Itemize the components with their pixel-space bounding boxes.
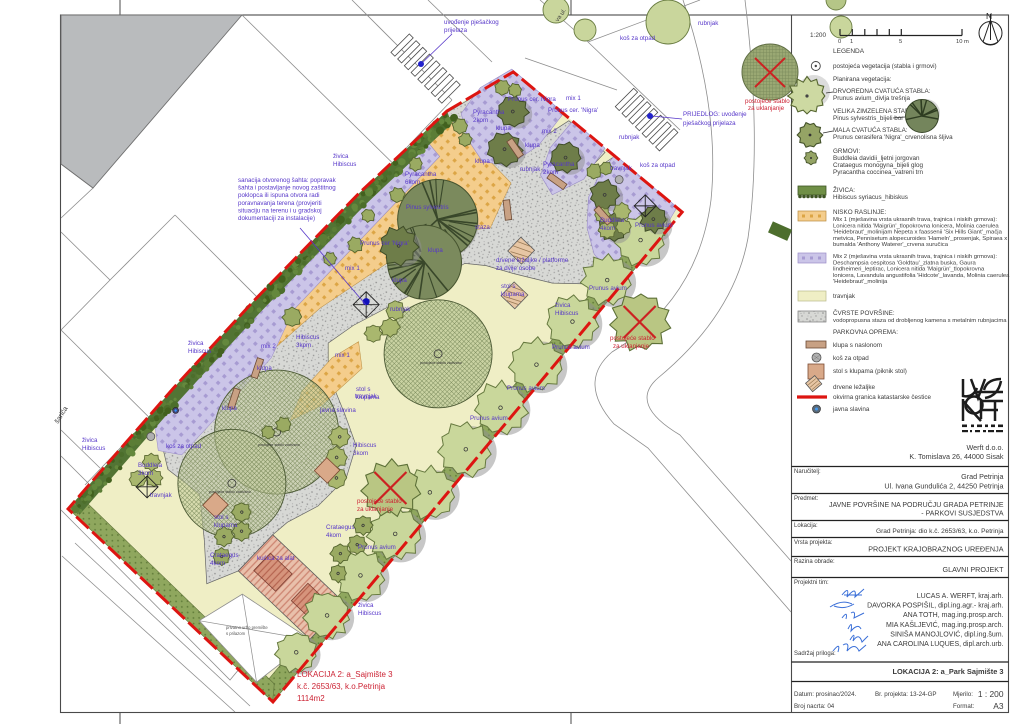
- svg-text:MALA CVATUĆA STABLA:: MALA CVATUĆA STABLA:: [833, 125, 908, 134]
- svg-text:rubnjak: rubnjak: [390, 306, 411, 313]
- svg-text:JAVNE POVRŠINE NA PODRUČJU GRA: JAVNE POVRŠINE NA PODRUČJU GRADA PETRINJ…: [829, 500, 1004, 509]
- svg-text:poklopca ili ispuna otvora rad: poklopca ili ispuna otvora radi: [238, 192, 320, 199]
- svg-text:živica: živica: [188, 340, 204, 347]
- svg-text:DAVORKA POSPIŠIL, dipl.ing.agr: DAVORKA POSPIŠIL, dipl.ing.agr.- kraj.ar…: [867, 601, 1003, 610]
- svg-text:živica: živica: [82, 437, 98, 444]
- svg-text:5: 5: [899, 39, 902, 45]
- svg-text:klupa: klupa: [475, 158, 490, 165]
- svg-text:2kom: 2kom: [473, 117, 488, 124]
- svg-text:Werft d.o.o.: Werft d.o.o.: [966, 443, 1003, 452]
- svg-text:K. Tomislava 26, 44000 Sisak: K. Tomislava 26, 44000 Sisak: [909, 452, 1004, 461]
- svg-text:4kom: 4kom: [210, 560, 225, 567]
- svg-text:6kom: 6kom: [405, 179, 420, 186]
- svg-text:Razina obrade:: Razina obrade:: [794, 559, 835, 565]
- svg-text:GRMOVI:: GRMOVI:: [833, 148, 861, 155]
- svg-text:Prunus avium_divlja trešnja: Prunus avium_divlja trešnja: [833, 95, 910, 102]
- svg-text:klupa: klupa: [428, 247, 443, 254]
- svg-text:N: N: [986, 11, 992, 21]
- svg-text:mix 1: mix 1: [345, 265, 360, 272]
- svg-text:Crataegus: Crataegus: [210, 552, 239, 559]
- svg-text:travnjak: travnjak: [833, 293, 856, 300]
- svg-text:klupa: klupa: [525, 142, 540, 149]
- svg-text:sanacija otvorenog šahta: popr: sanacija otvorenog šahta: popravak: [238, 177, 337, 184]
- svg-text:'Heidebraut'_molinijam Nepeta: 'Heidebraut'_molinijam Nepeta x faasseni…: [833, 230, 1003, 236]
- svg-text:0: 0: [838, 39, 841, 45]
- svg-text:poravnavanja terena (provjerit: poravnavanja terena (provjeriti: [238, 200, 322, 207]
- svg-text:Planirana vegetacija:: Planirana vegetacija:: [833, 76, 892, 83]
- svg-text:Pyracantha coccinea_vatreni tr: Pyracantha coccinea_vatreni trn: [833, 169, 923, 176]
- svg-text:Prunus cer. Nigra: Prunus cer. Nigra: [508, 96, 556, 103]
- svg-text:šahta i postavljanje novog zaš: šahta i postavljanje novog zaštitnog: [238, 185, 336, 192]
- svg-text:situaciju na terenu i u gradsk: situaciju na terenu i u gradskoj: [238, 207, 322, 214]
- svg-text:Grad Petrinja: dio k.č. 2653/6: Grad Petrinja: dio k.č. 2653/63, k.o. Pe…: [876, 528, 1004, 535]
- svg-text:LOKACIJA 2: a_Sajmište 3: LOKACIJA 2: a_Sajmište 3: [297, 670, 393, 679]
- svg-text:koš za otpad: koš za otpad: [166, 443, 202, 450]
- svg-text:NISKO RASLINJE:: NISKO RASLINJE:: [833, 209, 886, 216]
- svg-text:javna slavina: javna slavina: [319, 407, 356, 414]
- svg-text:rubnjak: rubnjak: [619, 134, 640, 141]
- svg-text:Prunus avium: Prunus avium: [470, 415, 508, 422]
- svg-text:za dvije osobe: za dvije osobe: [496, 265, 536, 272]
- svg-text:stol s: stol s: [214, 514, 228, 521]
- svg-text:Prunus avium: Prunus avium: [552, 344, 590, 351]
- svg-text:prijelaza: prijelaza: [444, 27, 468, 34]
- svg-text:Prunus avium: Prunus avium: [635, 222, 673, 229]
- svg-text:Mix 2 (mješavina vrsta ukrasni: Mix 2 (mješavina vrsta ukrasnih trava, t…: [833, 254, 997, 260]
- svg-text:Hibiscus: Hibiscus: [358, 610, 381, 617]
- svg-text:Hibiscus: Hibiscus: [353, 442, 376, 449]
- svg-text:pješačkog prijelaza: pješačkog prijelaza: [683, 120, 736, 127]
- svg-text:LOKACIJA 2: a_Park Sajmište 3: LOKACIJA 2: a_Park Sajmište 3: [892, 667, 1003, 676]
- svg-text:metvica, Pennisetum alopecuroi: metvica, Pennisetum alopecuroides 'Hamel…: [833, 236, 1007, 242]
- svg-text:koš za otpad: koš za otpad: [640, 162, 676, 169]
- svg-text:Deschampsia cespitosa 'Goldtau: Deschampsia cespitosa 'Goldtau'_zlatna b…: [833, 260, 976, 266]
- svg-text:postojeće stablo zadržano: postojeće stablo zadržano: [420, 361, 462, 365]
- svg-text:živica: živica: [358, 602, 374, 609]
- svg-text:Hibiscus: Hibiscus: [82, 445, 105, 452]
- svg-text:mix 2: mix 2: [542, 128, 557, 135]
- svg-text:1 : 200: 1 : 200: [978, 689, 1004, 699]
- svg-text:DRVOREDNA CVATUĆA STABLA:: DRVOREDNA CVATUĆA STABLA:: [833, 86, 931, 95]
- svg-text:rubnjak: rubnjak: [520, 166, 541, 173]
- svg-text:koš za otpad: koš za otpad: [833, 355, 869, 362]
- svg-text:Broj nacrta: 04: Broj nacrta: 04: [794, 703, 835, 710]
- svg-text:Pyracantha: Pyracantha: [543, 161, 575, 168]
- svg-text:mix 2: mix 2: [261, 343, 276, 350]
- svg-text:klupama: klupama: [214, 522, 238, 529]
- svg-text:LUCAS A. WERFT, kraj.arh.: LUCAS A. WERFT, kraj.arh.: [917, 593, 1004, 600]
- svg-text:kućica za alat: kućica za alat: [257, 555, 295, 562]
- svg-text:uvođenje pješačkog: uvođenje pješačkog: [444, 19, 499, 26]
- svg-text:Hibiscus: Hibiscus: [333, 161, 356, 168]
- svg-text:mix 1: mix 1: [566, 95, 581, 102]
- svg-text:LEGENDA: LEGENDA: [833, 48, 865, 55]
- svg-text:Buddleia davidii_ljetni jorgov: Buddleia davidii_ljetni jorgovan: [833, 155, 920, 162]
- svg-text:koš za otpad: koš za otpad: [620, 35, 656, 42]
- svg-text:Pyracantha: Pyracantha: [473, 109, 505, 116]
- svg-text:Lonicera nitida 'Maigrün'_tlop: Lonicera nitida 'Maigrün'_tlopokrovna lo…: [833, 223, 999, 229]
- svg-text:A3: A3: [993, 701, 1004, 711]
- svg-text:Prunus avium: Prunus avium: [358, 544, 396, 551]
- svg-text:drvene ležaljke / platforme: drvene ležaljke / platforme: [496, 257, 569, 264]
- svg-text:3kom: 3kom: [138, 470, 153, 477]
- svg-text:'Heidebraut'_molinija: 'Heidebraut'_molinija: [833, 279, 888, 285]
- svg-text:stol s: stol s: [356, 386, 370, 393]
- svg-text:Pyracantha: Pyracantha: [405, 171, 437, 178]
- svg-text:Predmet:: Predmet:: [794, 496, 819, 502]
- svg-text:postojeće stablo: postojeće stablo: [745, 98, 790, 105]
- svg-text:SINIŠA MANOJLOVIĆ, dipl.ing.šu: SINIŠA MANOJLOVIĆ, dipl.ing.šum.: [890, 629, 1003, 638]
- svg-text:Hibiscus: Hibiscus: [555, 310, 578, 317]
- svg-text:ANA CAROLINA LUQUES, dipl.arch: ANA CAROLINA LUQUES, dipl.arch.urb.: [877, 641, 1003, 648]
- svg-text:Naručitelj:: Naručitelj:: [794, 469, 821, 475]
- svg-text:1:200: 1:200: [810, 32, 826, 39]
- svg-text:travnjak: travnjak: [610, 165, 633, 172]
- svg-text:postojeće stablo: postojeće stablo: [357, 498, 402, 505]
- svg-text:drvene ležaljke: drvene ležaljke: [833, 384, 876, 391]
- svg-text:Grad Petrinja: Grad Petrinja: [961, 472, 1003, 481]
- svg-text:postojeće stablo: postojeće stablo: [610, 335, 655, 342]
- svg-text:1: 1: [850, 39, 853, 45]
- svg-text:Mix 1 (mješavina vrsta ukrasni: Mix 1 (mješavina vrsta ukrasnih trava, t…: [833, 217, 997, 223]
- svg-text:4kom: 4kom: [326, 532, 341, 539]
- svg-text:10 m: 10 m: [956, 39, 969, 45]
- svg-text:travnjak: travnjak: [150, 492, 173, 499]
- svg-text:Crataegus monogyna_bijeli glog: Crataegus monogyna_bijeli glog: [833, 162, 923, 169]
- svg-text:postojeće stablo zadržano: postojeće stablo zadržano: [258, 443, 300, 447]
- svg-text:3kpm: 3kpm: [296, 342, 311, 349]
- svg-text:Prunus avium: Prunus avium: [507, 385, 545, 392]
- svg-text:klupa s naslonom: klupa s naslonom: [833, 342, 882, 349]
- svg-text:bumalda 'Anthony Waterer'_crve: bumalda 'Anthony Waterer'_crvena suručic…: [833, 242, 949, 248]
- svg-text:postojeće stablo zadržano: postojeće stablo zadržano: [209, 490, 251, 494]
- svg-text:Hibiscus: Hibiscus: [296, 334, 319, 341]
- svg-text:klupa: klupa: [222, 405, 237, 412]
- svg-text:ČVRSTE POVRŠINE:: ČVRSTE POVRŠINE:: [833, 308, 895, 317]
- svg-text:okvirna granica katastarske če: okvirna granica katastarske čestice: [833, 394, 931, 401]
- svg-text:Buddleia: Buddleia: [138, 462, 163, 469]
- svg-text:2kom: 2kom: [543, 169, 558, 176]
- svg-text:javna slavina: javna slavina: [832, 406, 870, 413]
- svg-text:Buddleia: Buddleia: [600, 217, 625, 224]
- svg-text:klupama: klupama: [501, 291, 525, 298]
- svg-text:4kom: 4kom: [600, 225, 615, 232]
- svg-text:stol s klupama (piknik stol): stol s klupama (piknik stol): [833, 368, 907, 375]
- svg-text:Lokacija:: Lokacija:: [794, 523, 818, 529]
- svg-text:Prunus cer 'Nigra': Prunus cer 'Nigra': [360, 240, 409, 247]
- svg-text:Br. projekta: 13-24-GP: Br. projekta: 13-24-GP: [875, 691, 937, 698]
- svg-text:Sadržaj priloga:: Sadržaj priloga:: [794, 651, 836, 657]
- svg-text:Datum: prosinac/2024.: Datum: prosinac/2024.: [794, 691, 857, 698]
- svg-text:MIA KAŠLJEVIĆ, mag.ing.prosp.a: MIA KAŠLJEVIĆ, mag.ing.prosp.arch.: [886, 620, 1004, 629]
- svg-text:lindheimeri_leptirac, Lonicera: lindheimeri_leptirac, Lonicera nitida 'M…: [833, 267, 985, 273]
- svg-text:PARKOVNA OPREMA:: PARKOVNA OPREMA:: [833, 329, 898, 336]
- svg-text:ŽIVICA:: ŽIVICA:: [833, 185, 855, 194]
- svg-text:Mjerilo:: Mjerilo:: [953, 691, 973, 698]
- svg-text:postojeća vegetacija (stabla i: postojeća vegetacija (stabla i grmovi): [833, 63, 937, 70]
- svg-text:Crataegus: Crataegus: [326, 524, 355, 531]
- svg-text:za uklanjanje: za uklanjanje: [613, 343, 650, 350]
- svg-text:rubnjak: rubnjak: [698, 20, 719, 27]
- svg-text:Projektni tim:: Projektni tim:: [794, 580, 829, 586]
- svg-text:1114m2: 1114m2: [297, 694, 325, 703]
- svg-text:PROJEKT KRAJOBRAZNOG UREĐENJA: PROJEKT KRAJOBRAZNOG UREĐENJA: [868, 545, 1003, 554]
- svg-text:klupa: klupa: [257, 365, 272, 372]
- svg-text:Pinus sylvestris_bijeli bor: Pinus sylvestris_bijeli bor: [833, 115, 903, 122]
- svg-text:vodopropusna staza od drobljen: vodopropusna staza od drobljenog kamena …: [833, 318, 1007, 324]
- svg-text:ANA TOTH, mag.ing.prosp.arch.: ANA TOTH, mag.ing.prosp.arch.: [903, 612, 1004, 619]
- svg-text:klupa: klupa: [496, 125, 511, 132]
- svg-text:za uklanjanje: za uklanjanje: [357, 506, 394, 513]
- svg-text:Format:: Format:: [953, 703, 975, 710]
- svg-text:Hibiscus: Hibiscus: [188, 348, 211, 355]
- svg-text:PRIJEDLOG: uvođenje: PRIJEDLOG: uvođenje: [683, 111, 747, 118]
- svg-text:za uklanjanje: za uklanjanje: [748, 105, 785, 112]
- svg-text:stol s: stol s: [501, 283, 515, 290]
- svg-text:3kom: 3kom: [353, 450, 368, 457]
- svg-text:Prunus cer. 'Nigra': Prunus cer. 'Nigra': [548, 107, 598, 114]
- svg-text:- PARKOVI SUSJEDSTVA: - PARKOVI SUSJEDSTVA: [921, 511, 1004, 518]
- svg-text:klupama: klupama: [356, 394, 380, 401]
- svg-text:Pinus sylvestris: Pinus sylvestris: [406, 204, 449, 211]
- svg-text:Prunus avium: Prunus avium: [589, 285, 627, 292]
- svg-text:k.č. 2653/63, k.o.Petrinja: k.č. 2653/63, k.o.Petrinja: [297, 682, 386, 691]
- svg-text:privatno urbo premište: privatno urbo premište: [226, 625, 268, 630]
- svg-text:klupa: klupa: [392, 277, 407, 284]
- svg-text:s prilazom: s prilazom: [226, 631, 246, 636]
- svg-text:lonicera, Lavandula angustifol: lonicera, Lavandula angustifolia 'Hidcot…: [833, 273, 1010, 279]
- svg-text:živica: živica: [555, 302, 571, 309]
- svg-text:Hibiscus syriacus_hibiskus: Hibiscus syriacus_hibiskus: [833, 194, 908, 201]
- svg-text:Vrsta projekta:: Vrsta projekta:: [794, 540, 833, 546]
- svg-text:dokumentaciji za instalacije): dokumentaciji za instalacije): [238, 215, 315, 222]
- svg-text:živica: živica: [333, 153, 349, 160]
- svg-text:Prunus cerasifera 'Nigra'_crve: Prunus cerasifera 'Nigra'_crvenolisna šl…: [833, 134, 953, 141]
- svg-text:GLAVNI PROJEKT: GLAVNI PROJEKT: [943, 565, 1005, 574]
- svg-text:Ul. Ivana Gundulića 2, 44250 P: Ul. Ivana Gundulića 2, 44250 Petrinja: [884, 482, 1003, 491]
- svg-text:mix 1: mix 1: [335, 352, 350, 359]
- svg-text:staza: staza: [475, 224, 490, 231]
